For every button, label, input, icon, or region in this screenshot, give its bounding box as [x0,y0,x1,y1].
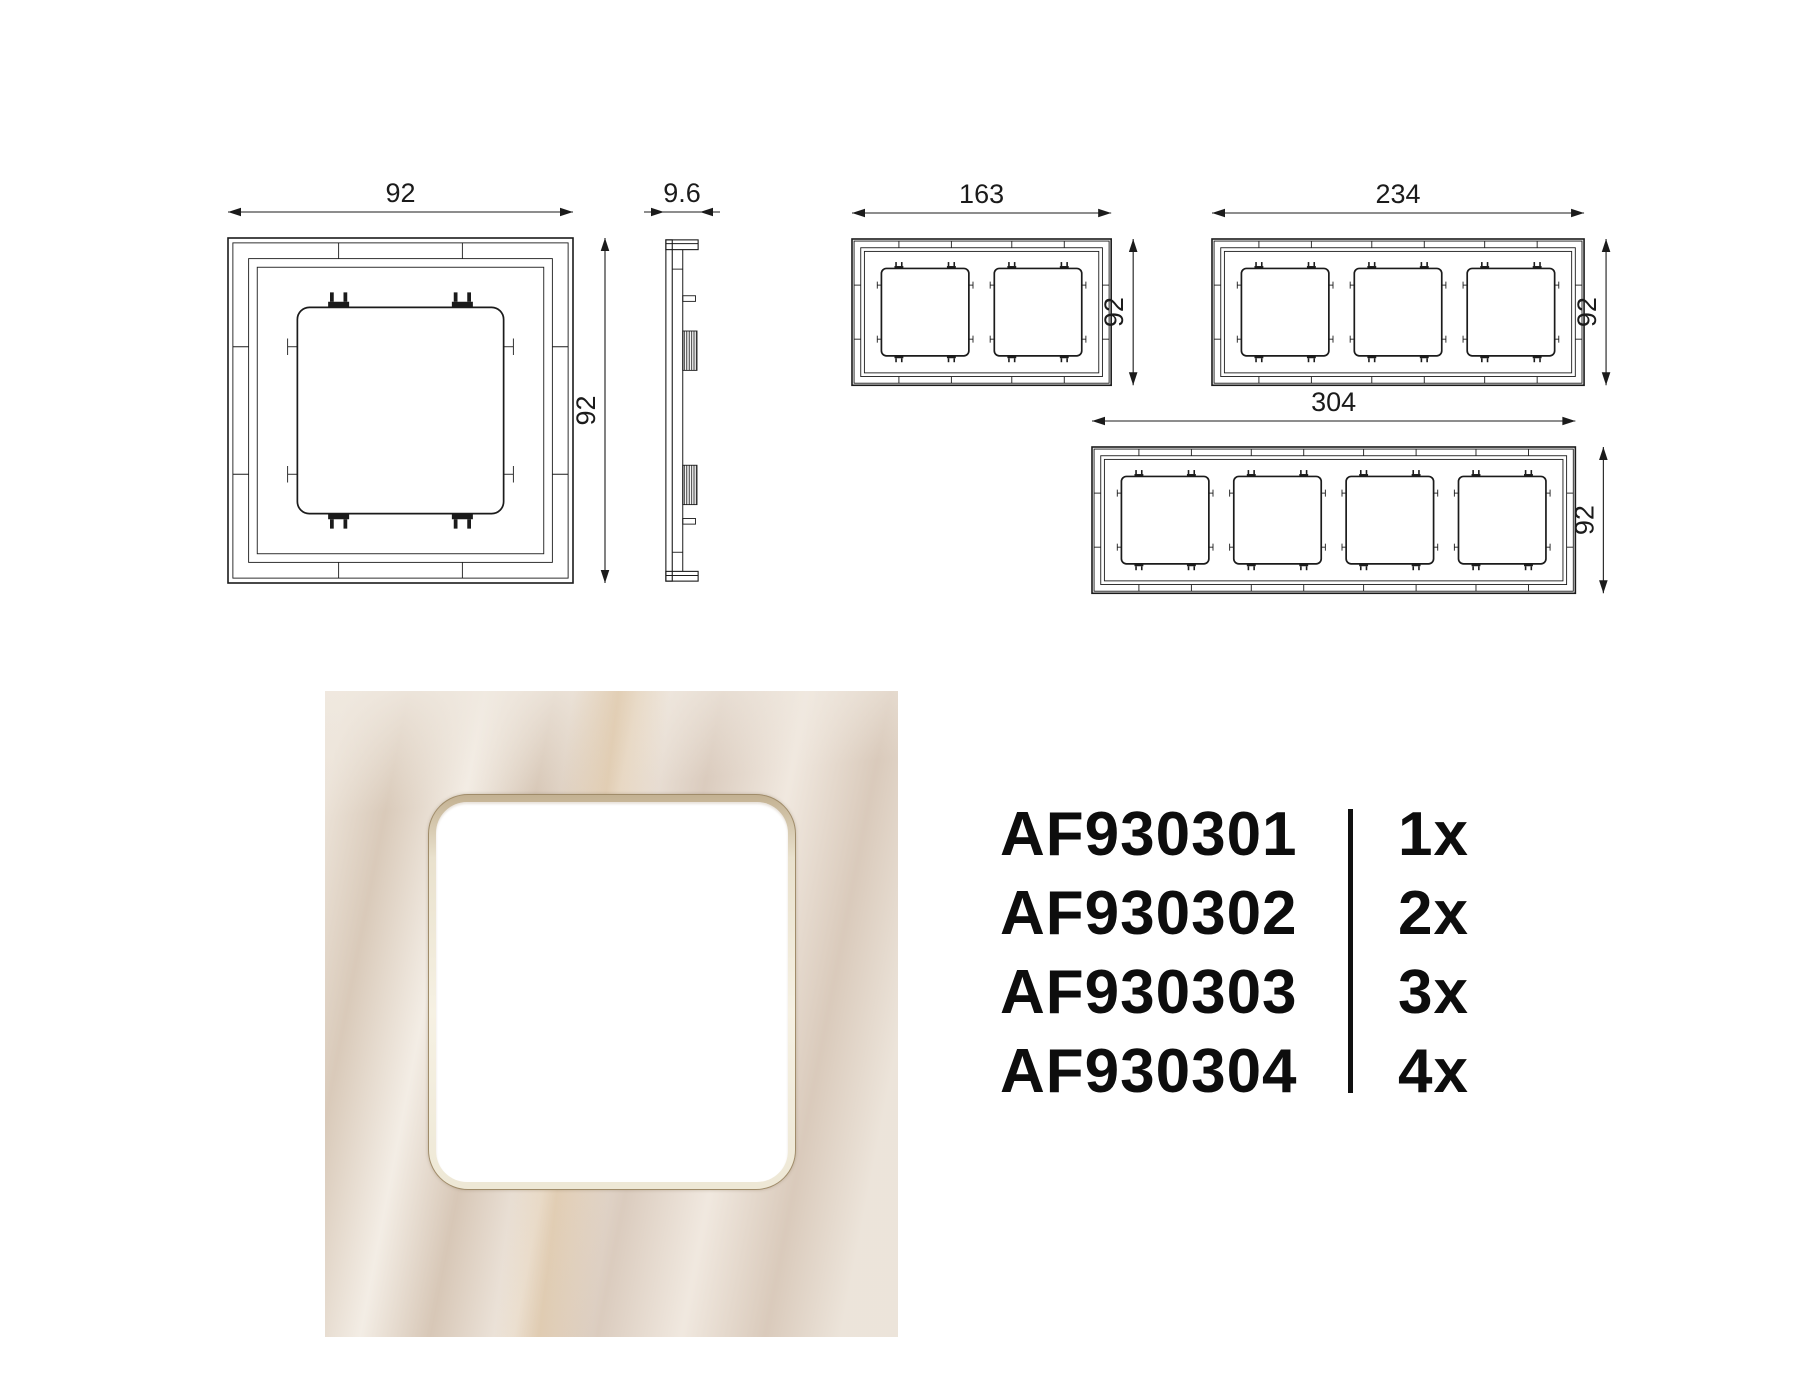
height-dim-label: 92 [1572,297,1602,327]
part-quantity-column: 1x 2x 3x 4x [1398,795,1469,1111]
part-quantity: 3x [1398,953,1469,1032]
part-number: AF930301 [1000,795,1298,874]
datasheet-page: 9292 9.6 16392 23492 30492 AF930301 AF93… [0,0,1800,1400]
height-dim-label: 92 [1099,297,1129,327]
part-number: AF930304 [1000,1032,1298,1111]
product-photo [325,691,898,1337]
drawing-front-2gang: 16392 [838,167,1168,400]
width-dim-label: 163 [959,179,1004,209]
width-dim-label: 92 [385,178,415,208]
frame-window [428,794,796,1190]
frame-window-opening [436,802,788,1182]
drawing-front-1gang: 9292 [214,166,639,597]
width-dim-label: 304 [1311,387,1356,417]
part-quantity: 2x [1398,874,1469,953]
width-dim-label: 234 [1375,179,1420,209]
drawing-side-profile: 9.6 [640,166,724,597]
part-quantity: 1x [1398,795,1469,874]
part-number-column: AF930301 AF930302 AF930303 AF930304 [1000,795,1298,1111]
part-number: AF930302 [1000,874,1298,953]
parts-list: AF930301 AF930302 AF930303 AF930304 1x 2… [1000,795,1480,1115]
drawing-front-4gang: 30492 [1078,375,1638,608]
thickness-dim-label: 9.6 [663,178,701,208]
height-dim-label: 92 [571,395,601,425]
height-dim-label: 92 [1569,505,1599,535]
list-divider [1348,809,1353,1093]
part-number: AF930303 [1000,953,1298,1032]
drawing-front-3gang: 23492 [1198,167,1641,400]
part-quantity: 4x [1398,1032,1469,1111]
